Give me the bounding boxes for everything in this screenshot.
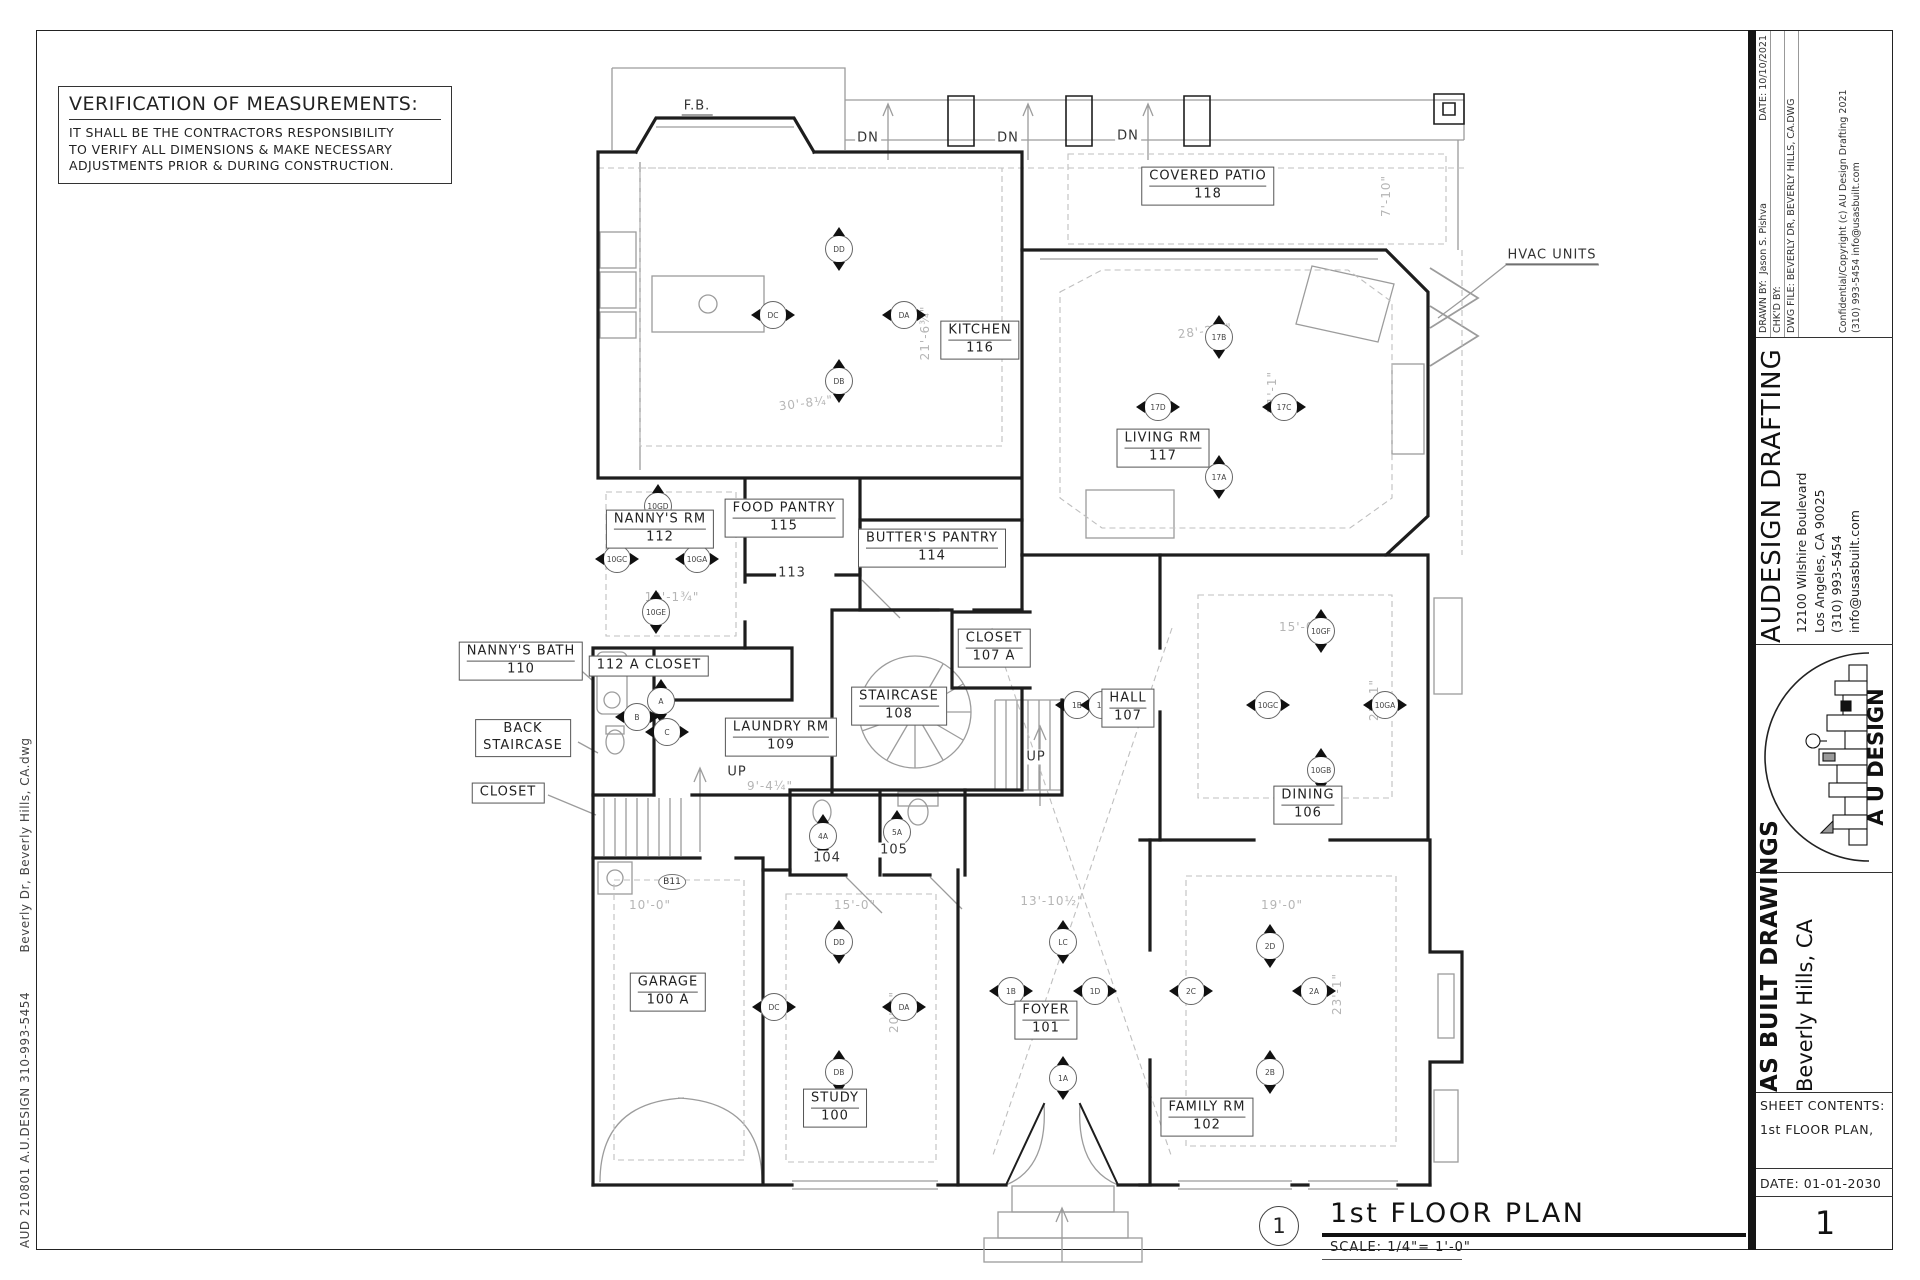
fixture-symbol-label: 4A xyxy=(818,832,828,841)
project-location: Beverly Hills, CA xyxy=(1793,874,1817,1092)
room-label-study-100: STUDY100 xyxy=(803,1089,867,1128)
room-label-text: DINING xyxy=(1281,788,1334,806)
ceiling-fixture-symbol-10gf: 10GF xyxy=(1307,617,1335,645)
ceiling-fixture-symbol-dc: DC xyxy=(760,993,788,1021)
drawing-title-rule xyxy=(1322,1233,1746,1237)
room-label-text: BACK xyxy=(483,721,563,738)
fixture-symbol-label: DA xyxy=(899,311,910,320)
verification-line: IT SHALL BE THE CONTRACTORS RESPONSIBILI… xyxy=(69,125,441,142)
fixture-symbol-label: DC xyxy=(768,1003,779,1012)
fixture-symbol-label: 10GF xyxy=(1311,627,1331,636)
ceiling-fixture-symbol-17c: 17C xyxy=(1270,393,1298,421)
company-name: AUDESIGN DRAFTING xyxy=(1757,339,1787,643)
room-label-text: COVERED PATIO xyxy=(1149,169,1266,187)
ceiling-fixture-symbol-db: DB xyxy=(825,367,853,395)
room-label-text: 117 xyxy=(1125,449,1202,466)
fixture-symbol-label: DD xyxy=(833,938,845,947)
margin-filename-text: Beverly Dr, Beverly Hills, CA.dwg xyxy=(18,737,32,952)
room-label-text: CLOSET xyxy=(966,631,1023,649)
room-label-text: 118 xyxy=(1149,187,1266,204)
room-label-text: FOYER xyxy=(1022,1003,1069,1021)
room-label-text: 107 A xyxy=(966,649,1023,666)
ceiling-fixture-symbol-17b: 17B xyxy=(1205,323,1233,351)
sheet-contents-value: 1st FLOOR PLAN, xyxy=(1760,1122,1890,1137)
ceiling-fixture-symbol-10gc: 10GC xyxy=(603,545,631,573)
verification-line: ADJUSTMENTS PRIOR & DURING CONSTRUCTION. xyxy=(69,158,441,175)
fixture-symbol-label: 17B xyxy=(1212,333,1227,342)
fixture-symbol-label: 5A xyxy=(892,828,902,837)
fixture-symbol-label: A xyxy=(658,697,663,706)
fixture-symbol-label: 10GA xyxy=(687,555,708,564)
company-phone: (310) 993-5454 xyxy=(1828,339,1846,633)
fixture-symbol-label: DB xyxy=(834,377,845,386)
chkd-by-row: CHK'D BY: xyxy=(1771,31,1785,337)
room-label-text: 100 xyxy=(811,1109,859,1126)
detail-number-circle: 1 xyxy=(1259,1206,1299,1246)
ceiling-fixture-symbol-db: DB xyxy=(825,1058,853,1086)
company-address-line2: Los Angeles, CA 90025 xyxy=(1811,339,1829,633)
fixture-symbol-label: 1D xyxy=(1090,987,1101,996)
room-label-hall-107: HALL107 xyxy=(1101,689,1154,728)
room-label-text: 114 xyxy=(866,549,998,566)
verification-line: TO VERIFY ALL DIMENSIONS & MAKE NECESSAR… xyxy=(69,142,441,159)
dimension-text: 30'-8¼" xyxy=(778,393,834,414)
verification-note: VERIFICATION OF MEASUREMENTS: IT SHALL B… xyxy=(58,86,452,184)
room-label-back-staircase: BACKSTAIRCASE xyxy=(475,719,571,757)
room-label-living-rm-117: LIVING RM117 xyxy=(1117,429,1210,468)
sheet-number-box: 1 xyxy=(1757,1198,1893,1248)
drawing-title: 1st FLOOR PLAN xyxy=(1330,1198,1585,1229)
fixture-symbol-label: B xyxy=(634,713,639,722)
room-label-text: KITCHEN xyxy=(948,323,1011,341)
ceiling-fixture-symbol-10gb: 10GB xyxy=(1307,756,1335,784)
room-label-text: LIVING RM xyxy=(1125,431,1202,449)
ceiling-fixture-symbol-da: DA xyxy=(890,993,918,1021)
room-label-nanny-s-rm-112: NANNY'S RM112 xyxy=(606,510,714,549)
room-label-kitchen-116: KITCHEN116 xyxy=(940,321,1019,360)
drawn-by-label: DRAWN BY: xyxy=(1758,280,1769,333)
plan-label-105: 105 xyxy=(878,843,910,858)
plan-label-up: UP xyxy=(725,765,748,780)
title-block-info-section: DRAWN BY: Jason S. Pishva DATE: 10/10/20… xyxy=(1757,31,1893,337)
room-label-text: 101 xyxy=(1022,1021,1069,1038)
ceiling-fixture-symbol-dd: DD xyxy=(825,928,853,956)
room-label-112-a-closet: 112 A CLOSET xyxy=(589,656,709,677)
sheet-number: 1 xyxy=(1815,1204,1835,1242)
room-label-food-pantry-115: FOOD PANTRY115 xyxy=(725,499,844,538)
dimension-text: 10'-0" xyxy=(629,898,671,912)
title-block-project-section: AS BUILT DRAWINGS Beverly Hills, CA xyxy=(1757,874,1893,1092)
fixture-symbol-label: 1B xyxy=(1006,987,1016,996)
room-label-text: 108 xyxy=(859,707,939,724)
plan-label-dn: DN xyxy=(855,131,881,146)
ceiling-fixture-symbol-da: DA xyxy=(890,301,918,329)
ceiling-fixture-symbol-c: C xyxy=(653,718,681,746)
room-label-closet: CLOSET xyxy=(472,783,545,804)
ceiling-fixture-symbol-10ge: 10GE xyxy=(642,598,670,626)
dimension-text: 15'-0" xyxy=(834,898,876,912)
copyright-contact-text: (310) 993-5454 info@usasbuilt.com xyxy=(1850,31,1863,337)
room-label-text: 112 xyxy=(614,530,706,547)
chkd-by-label: CHK'D BY: xyxy=(1772,286,1783,333)
fixture-symbol-label: DB xyxy=(834,1068,845,1077)
plan-label-hvac-units: HVAC UNITS xyxy=(1506,248,1599,265)
ceiling-fixture-symbol-lc: LC xyxy=(1049,928,1077,956)
ceiling-fixture-symbol-17d: 17D xyxy=(1144,393,1172,421)
dimension-text: 19'-0" xyxy=(1261,898,1303,912)
fixture-symbol-label: 1A xyxy=(1058,1074,1068,1083)
dimension-text: 9'-4¼" xyxy=(747,779,793,793)
room-label-foyer-101: FOYER101 xyxy=(1014,1001,1077,1040)
detail-number: 1 xyxy=(1272,1214,1285,1238)
date-label: DATE: xyxy=(1758,93,1769,121)
room-label-nanny-s-bath-110: NANNY'S BATH110 xyxy=(459,642,583,681)
room-label-butter-s-pantry-114: BUTTER'S PANTRY114 xyxy=(858,529,1006,568)
drawing-scale: SCALE: 1/4"= 1'-0" xyxy=(1330,1240,1471,1255)
plan-annotations: KITCHEN116COVERED PATIO118LIVING RM117NA… xyxy=(0,0,1920,1280)
room-label-text: BUTTER'S PANTRY xyxy=(866,531,998,549)
title-block-company-section: AUDESIGN DRAFTING 12100 Wilshire Bouleva… xyxy=(1757,339,1893,643)
fixture-symbol-label: DA xyxy=(899,1003,910,1012)
room-label-text: 110 xyxy=(467,662,575,679)
fixture-symbol-label: 10GA xyxy=(1375,701,1396,710)
room-label-text: 102 xyxy=(1168,1118,1245,1135)
ceiling-fixture-symbol-dd: DD xyxy=(825,235,853,263)
fixture-symbol-label: LC xyxy=(1058,938,1067,947)
room-label-laundry-rm-109: LAUNDRY RM109 xyxy=(725,718,837,757)
room-label-text: 109 xyxy=(733,738,829,755)
room-label-text: FOOD PANTRY xyxy=(733,501,836,519)
fixture-symbol-label: DC xyxy=(767,311,778,320)
plan-label-dn: DN xyxy=(1115,129,1141,144)
fixture-symbol-label: 17C xyxy=(1277,403,1292,412)
fixture-symbol-label: 10GC xyxy=(1258,701,1279,710)
title-block-date: DATE: 01-01-2030 xyxy=(1760,1173,1881,1192)
room-label-text: 106 xyxy=(1281,806,1334,823)
room-label-text: STAIRCASE xyxy=(483,738,563,755)
room-label-text: HALL xyxy=(1109,691,1146,709)
fixture-symbol-label: 2C xyxy=(1186,987,1196,996)
verification-title: VERIFICATION OF MEASUREMENTS: xyxy=(69,93,441,120)
fixture-symbol-label: 17A xyxy=(1212,473,1227,482)
plan-label-f-b: F.B. xyxy=(682,99,713,116)
room-label-closet-107-a: CLOSET107 A xyxy=(958,629,1031,668)
sheet-contents-section: SHEET CONTENTS: 1st FLOOR PLAN, xyxy=(1760,1098,1890,1137)
ceiling-fixture-symbol-2b: 2B xyxy=(1256,1058,1284,1086)
room-label-covered-patio-118: COVERED PATIO118 xyxy=(1141,167,1274,206)
fixture-symbol-label: 2D xyxy=(1265,942,1276,951)
company-address-line1: 12100 Wilshire Boulevard xyxy=(1793,339,1811,633)
room-label-text: STUDY xyxy=(811,1091,859,1109)
ceiling-fixture-symbol-10ga: 10GA xyxy=(683,545,711,573)
dwg-file-row: DWG FILE: BEVERLY DR, BEVERLY HILLS, CA.… xyxy=(1785,31,1799,337)
room-label-text: GARAGE xyxy=(638,975,698,993)
dimension-text: 7'-10" xyxy=(1379,175,1393,217)
room-label-text: 112 A CLOSET xyxy=(597,658,701,675)
dwg-file-value: DWG FILE: BEVERLY DR, BEVERLY HILLS, CA.… xyxy=(1786,99,1797,333)
room-label-text: STAIRCASE xyxy=(859,689,939,707)
sheet-contents-label: SHEET CONTENTS: xyxy=(1760,1098,1890,1113)
room-label-text: LAUNDRY RM xyxy=(733,720,829,738)
room-label-staircase-108: STAIRCASE108 xyxy=(851,687,947,726)
dimension-text: 13'-10½" xyxy=(1020,894,1083,908)
fixture-symbol-label: 2A xyxy=(1309,987,1319,996)
drawn-by-row: DRAWN BY: Jason S. Pishva DATE: 10/10/20… xyxy=(1757,31,1771,337)
fixture-symbol-label: 10GB xyxy=(1311,766,1332,775)
room-label-dining-106: DINING106 xyxy=(1273,786,1342,825)
ceiling-fixture-symbol-2d: 2D xyxy=(1256,932,1284,960)
drawn-by-value: Jason S. Pishva xyxy=(1758,203,1769,274)
plan-label-dn: DN xyxy=(995,131,1021,146)
ceiling-fixture-symbol-dc: DC xyxy=(759,301,787,329)
room-label-text: NANNY'S BATH xyxy=(467,644,575,662)
copyright-text: Confidential/Copyright (c) AU Design Dra… xyxy=(1837,31,1850,337)
room-label-garage-100-a: GARAGE100 A xyxy=(630,973,706,1012)
plan-label-113: 113 xyxy=(776,566,808,581)
room-label-family-rm-102: FAMILY RM102 xyxy=(1160,1098,1253,1137)
room-label-text: FAMILY RM xyxy=(1168,1100,1245,1118)
ceiling-fixture-symbol-4a: 4A xyxy=(809,822,837,850)
ceiling-fixture-symbol-2a: 2A xyxy=(1300,977,1328,1005)
ceiling-fixture-symbol-10ga: 10GA xyxy=(1371,691,1399,719)
fixture-symbol-label: 10GC xyxy=(607,555,628,564)
date-row-text: DATE: 01-01-2030 xyxy=(1760,1176,1881,1191)
date-value: 10/10/2021 xyxy=(1758,35,1769,90)
company-email: info@usasbuilt.com xyxy=(1846,339,1864,633)
fixture-symbol-label: 10GE xyxy=(646,608,666,617)
fixture-symbol-label: DD xyxy=(833,245,845,254)
room-label-text: 115 xyxy=(733,519,836,536)
room-label-text: NANNY'S RM xyxy=(614,512,706,530)
logo-wordmark: A U DESIGN xyxy=(1864,688,1888,825)
ceiling-fixture-symbol-1a: 1A xyxy=(1049,1064,1077,1092)
fixture-symbol-label: 2B xyxy=(1265,1068,1275,1077)
plan-label-up: UP xyxy=(1024,750,1047,765)
fixture-symbol-label: 17D xyxy=(1150,403,1165,412)
room-label-text: 107 xyxy=(1109,709,1146,726)
ceiling-fixture-symbol-2c: 2C xyxy=(1177,977,1205,1005)
ceiling-fixture-symbol-1d: 1D xyxy=(1081,977,1109,1005)
project-title: AS BUILT DRAWINGS xyxy=(1757,874,1783,1092)
room-label-text: 116 xyxy=(948,341,1011,358)
ceiling-fixture-symbol-10gc: 10GC xyxy=(1254,691,1282,719)
drawing-scale-rule xyxy=(1322,1259,1462,1260)
margin-project-number-text: AUD 210801 A.U.DESIGN 310-993-5454 xyxy=(18,992,32,1248)
room-label-text: CLOSET xyxy=(480,785,537,802)
plan-label-b11: B11 xyxy=(658,874,686,890)
room-label-text: 100 A xyxy=(638,993,698,1010)
fixture-symbol-label: C xyxy=(664,728,669,737)
plan-label-104: 104 xyxy=(811,851,843,866)
